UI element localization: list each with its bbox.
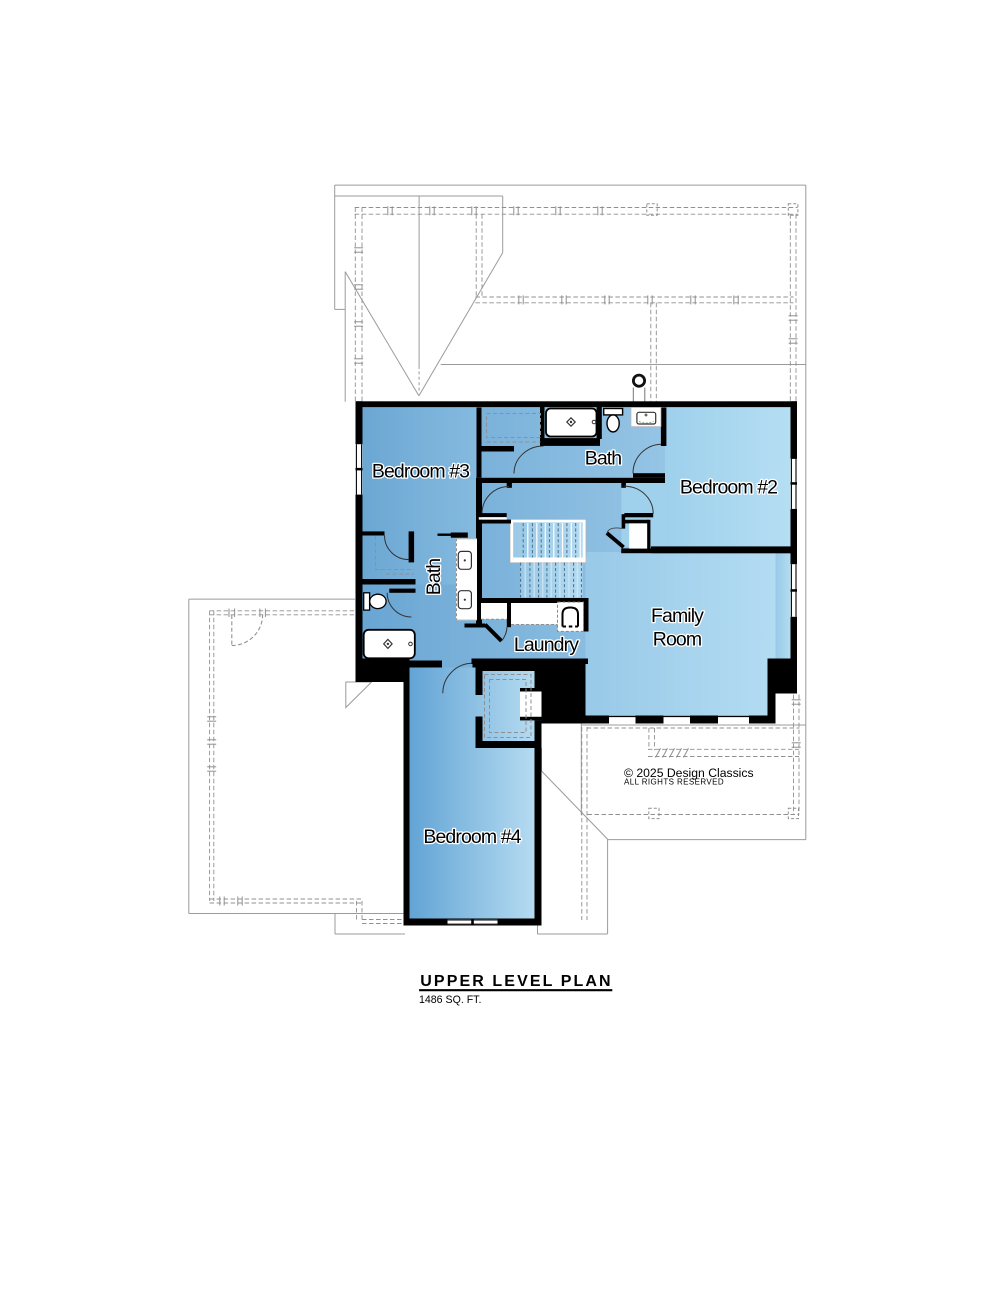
svg-text:UPPER LEVEL PLAN: UPPER LEVEL PLAN bbox=[420, 973, 612, 990]
svg-text:Bath: Bath bbox=[585, 448, 622, 470]
svg-text:Bedroom #2: Bedroom #2 bbox=[680, 477, 777, 499]
svg-text:Room: Room bbox=[653, 629, 701, 651]
svg-text:ALL RIGHTS RESERVED: ALL RIGHTS RESERVED bbox=[624, 778, 724, 787]
svg-text:Family: Family bbox=[651, 605, 704, 627]
svg-text:1486 SQ. FT.: 1486 SQ. FT. bbox=[419, 994, 481, 1006]
svg-text:Bath: Bath bbox=[423, 559, 445, 596]
svg-text:Bedroom #3: Bedroom #3 bbox=[372, 461, 469, 483]
svg-text:Laundry: Laundry bbox=[514, 634, 579, 656]
svg-text:Bedroom #4: Bedroom #4 bbox=[423, 826, 521, 848]
